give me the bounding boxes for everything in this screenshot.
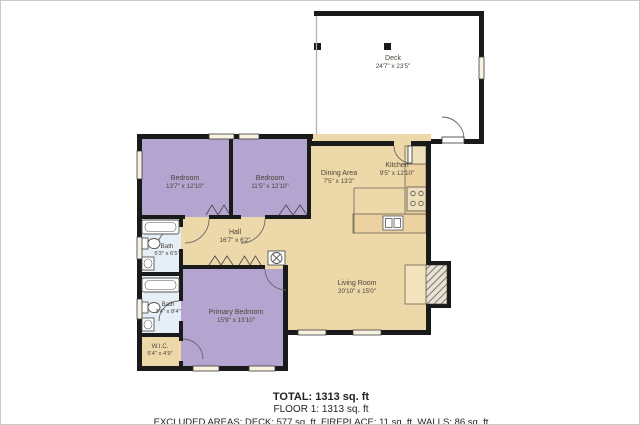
door-leaf-icon bbox=[442, 137, 464, 143]
window-icon bbox=[137, 151, 142, 179]
door-leaf-icon bbox=[408, 146, 412, 163]
bathtub-icon bbox=[142, 220, 179, 234]
floor-area-text: FLOOR 1: 1313 sq. ft bbox=[1, 404, 640, 415]
window-icon bbox=[137, 299, 142, 319]
window-icon bbox=[353, 330, 381, 335]
deck-post-icon bbox=[384, 43, 391, 50]
bathtub-icon bbox=[142, 278, 179, 292]
window-icon bbox=[479, 57, 484, 79]
window-icon bbox=[137, 237, 142, 259]
window-icon bbox=[209, 134, 234, 139]
floor-plan-canvas: Deck 24'7" x 23'5" Bedroom 13'7" x 12'10… bbox=[0, 0, 640, 425]
toilet-icon bbox=[148, 303, 160, 313]
kitchen-sink-icon bbox=[383, 216, 403, 230]
toilet-icon bbox=[142, 238, 148, 249]
water-heater-icon bbox=[268, 251, 285, 265]
toilet-icon bbox=[148, 239, 160, 249]
toilet-icon bbox=[142, 302, 148, 313]
total-area-text: TOTAL: 1313 sq. ft bbox=[1, 391, 640, 403]
door-swing-icon bbox=[442, 117, 464, 139]
fireplace-icon bbox=[405, 265, 447, 304]
excluded-areas-text: EXCLUDED AREAS: DECK: 577 sq. ft, FIREPL… bbox=[1, 417, 640, 425]
floor-plan-drawing bbox=[1, 1, 640, 425]
stove-icon bbox=[407, 187, 426, 211]
deck-post-icon bbox=[314, 43, 321, 50]
window-icon bbox=[239, 134, 259, 139]
window-icon bbox=[298, 330, 326, 335]
window-icon bbox=[249, 366, 275, 371]
window-icon bbox=[193, 366, 219, 371]
